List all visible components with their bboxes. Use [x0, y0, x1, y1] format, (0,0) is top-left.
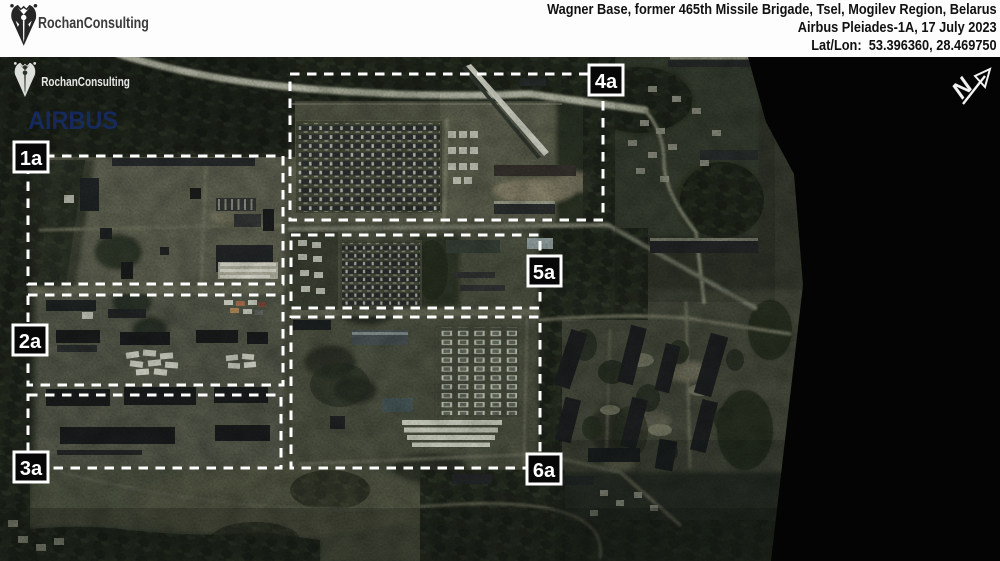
svg-text:AIRBUS: AIRBUS	[28, 107, 118, 135]
svg-text:1a: 1a	[20, 148, 43, 170]
svg-text:5a: 5a	[533, 262, 556, 284]
svg-text:3a: 3a	[20, 458, 43, 480]
svg-text:RochanConsulting: RochanConsulting	[41, 76, 130, 89]
svg-text:6a: 6a	[533, 460, 556, 482]
svg-text:2a: 2a	[19, 331, 42, 353]
svg-text:4a: 4a	[595, 71, 618, 93]
